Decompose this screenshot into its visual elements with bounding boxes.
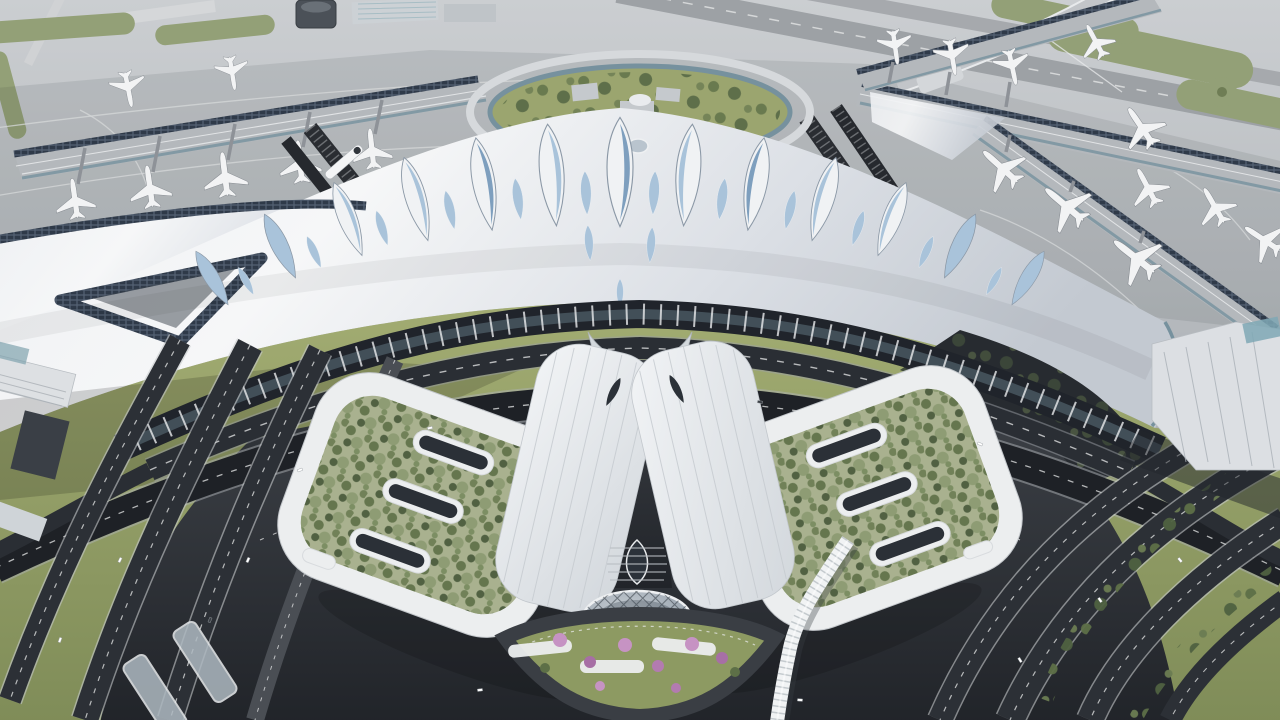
aerial-render <box>0 0 1280 720</box>
control-tower-cab <box>301 2 331 13</box>
courtyard-pavilion <box>629 94 651 106</box>
airport-scene <box>0 0 1280 720</box>
service-building <box>444 4 496 22</box>
